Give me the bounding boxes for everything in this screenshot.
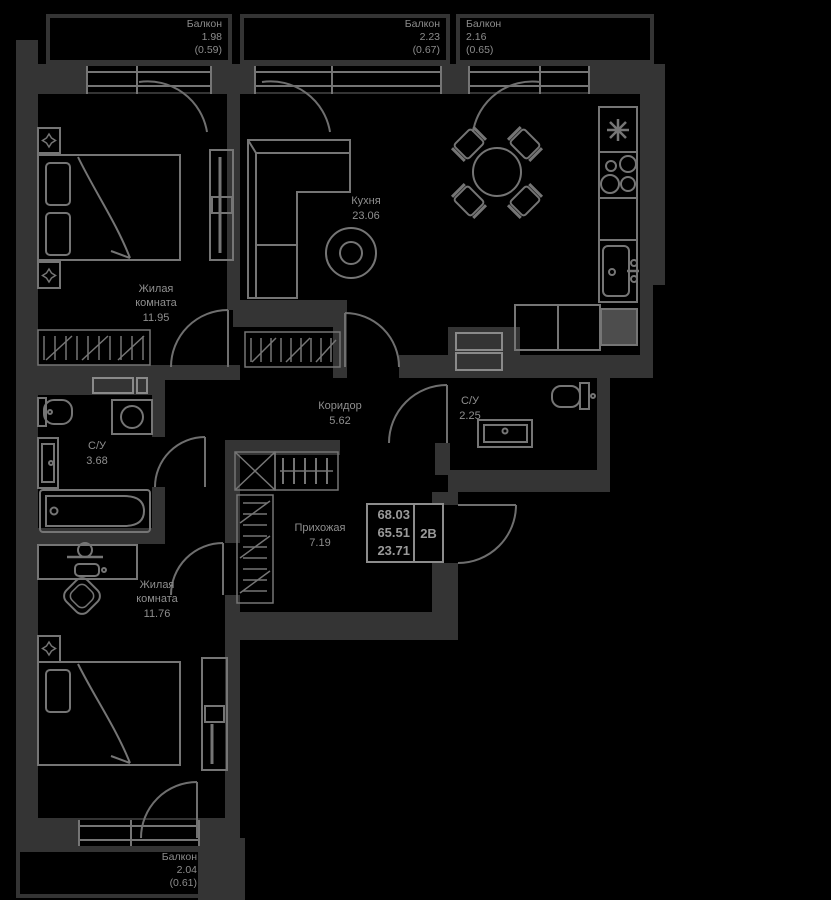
rooms-area: 23.71 [368,542,410,560]
desk-knob [102,568,106,572]
sink-drain [49,461,53,465]
dining-table [473,148,521,196]
dining-chair [507,183,542,218]
plant-icon [43,134,56,147]
floorplan: Балкон 1.98 (0.59) Балкон 2.23 (0.67) Ба… [0,0,831,900]
wardrobe-cross [235,452,275,490]
sink-drain [609,269,615,275]
appliance [601,309,637,345]
desk-chair [61,575,103,617]
corridor-label: Коридор 5.62 [300,399,380,428]
bed2-pillow [46,670,70,712]
plant-icon [43,269,56,282]
kitchen-label: Кухня 23.06 [326,194,406,223]
living2-label: Жилая комната 11.76 [122,578,192,621]
rug-outer [326,228,376,278]
vanity-drain [503,429,508,434]
dining-chair [451,126,486,161]
bed2-blanket-fold [78,664,130,763]
door-bathroom-large [155,437,205,487]
bed1 [38,155,180,260]
faucet-knob [631,260,637,266]
toilet-valve [591,394,595,398]
hob-burner [601,175,619,193]
dining-chair [507,126,542,161]
closet-corridor [245,332,340,367]
toilet-bowl [552,386,580,407]
total-area: 68.03 [368,506,410,524]
kitchen-sink [603,246,629,296]
hob-burner [620,156,636,172]
closet-hallway [237,495,273,603]
balcony-bottom-label: Балкон 2.04 (0.61) [162,851,197,890]
kitchen-furniture [245,107,639,367]
bed1-pillow-bottom [46,213,70,255]
snowflake-icon [607,119,629,141]
living1-label: Жилая комната 11.95 [121,282,191,325]
bed2 [38,662,180,765]
plant-icon [43,642,56,655]
walls [16,40,665,900]
desk-item [75,564,99,576]
desk [38,545,137,579]
counter [599,198,637,240]
area-info-box: 68.03 65.51 23.71 2В [366,503,444,563]
door-kitchen [345,313,399,367]
washer-drum [121,406,143,428]
bathtub-basin [46,496,144,526]
bed1-blanket-fold [78,157,130,258]
toilet-valve [48,410,52,414]
hallway-label: Прихожая 7.19 [280,521,360,550]
dining-chair [451,183,486,218]
bed1-pillow-top [46,163,70,205]
balcony-top-right-label: Балкон 2.16 (0.65) [466,18,501,57]
hob-burner [606,161,616,171]
living1-furniture [38,128,233,365]
bathroom-large-label: С/У 3.68 [57,439,137,468]
faucet-knob [631,276,637,282]
windows [78,66,590,846]
bathroom-small-label: С/У 2.25 [430,394,510,423]
balcony-top-middle-label: Балкон 2.23 (0.67) [405,18,440,57]
tv2-mount [205,706,224,722]
rug-inner [340,242,362,264]
nightstand1-bottom [38,262,60,288]
flat-type-badge: 2В [413,505,442,561]
nightstand2 [38,636,60,662]
toilet-tank [580,383,589,409]
bathtub-drain [51,508,58,515]
door-entrance [458,505,516,563]
living-plus-area: 65.51 [368,524,410,542]
closet-living1 [38,330,150,365]
hob-burner [621,177,635,191]
balcony-top-left-label: Балкон 1.98 (0.59) [187,18,222,57]
